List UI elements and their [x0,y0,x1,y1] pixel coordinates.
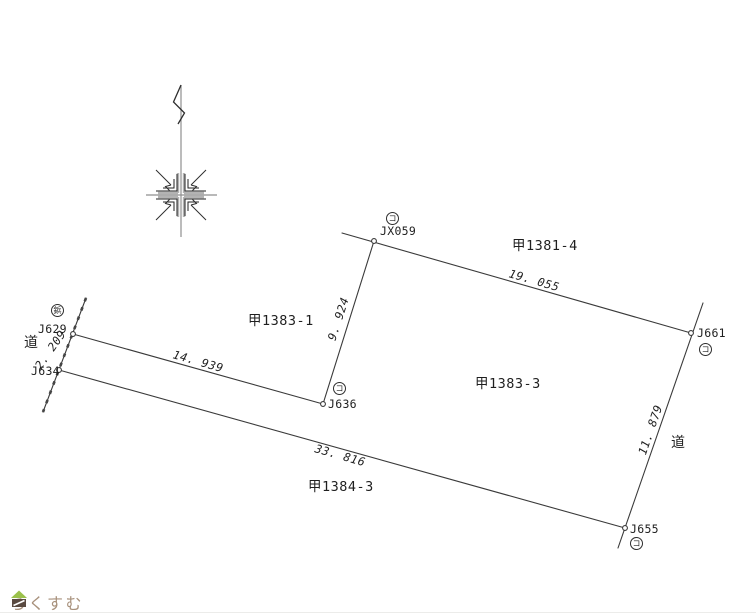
marker-symbol-j655-clipped: コ [629,537,645,550]
point-j629 [71,332,76,337]
marker-symbol-j655: コ [630,537,643,550]
parcel-label-1381-4: 甲1381-4 [512,240,578,254]
rakusumu-house-icon [10,590,28,608]
marker-symbol-j629-byo: 鋲 [51,304,64,317]
parcel-label-1383-1: 甲1383-1 [248,315,314,329]
marker-symbol-j636: コ [333,382,346,395]
north-arrow-symbol [146,85,217,237]
point-jx059 [372,239,377,244]
parcel-label-1384-3: 甲1384-3 [308,481,374,495]
road-edge-right [618,303,703,548]
point-j655 [623,526,628,531]
survey-plat-drawing: 甲1383-1 甲1381-4 甲1383-3 甲1384-3 道 道 JX05… [0,0,756,613]
flag-icon [174,85,185,124]
boundary-j629-j636 [73,334,323,404]
site-brand: らくすむ [10,590,84,613]
point-label-j655: J655 [630,524,659,536]
marker-symbol-jx059: コ [386,212,399,225]
point-j636 [321,402,326,407]
road-label-right: 道 [671,436,685,450]
parcel-label-1383-3: 甲1383-3 [475,378,541,392]
point-label-j636: J636 [328,399,357,411]
point-j661 [689,331,694,336]
survey-point-markers [57,239,694,531]
point-label-j661: J661 [697,328,726,340]
road-label-left: 道 [24,336,38,350]
marker-symbol-j661: コ [699,343,712,356]
point-label-jx059: JX059 [380,226,416,238]
